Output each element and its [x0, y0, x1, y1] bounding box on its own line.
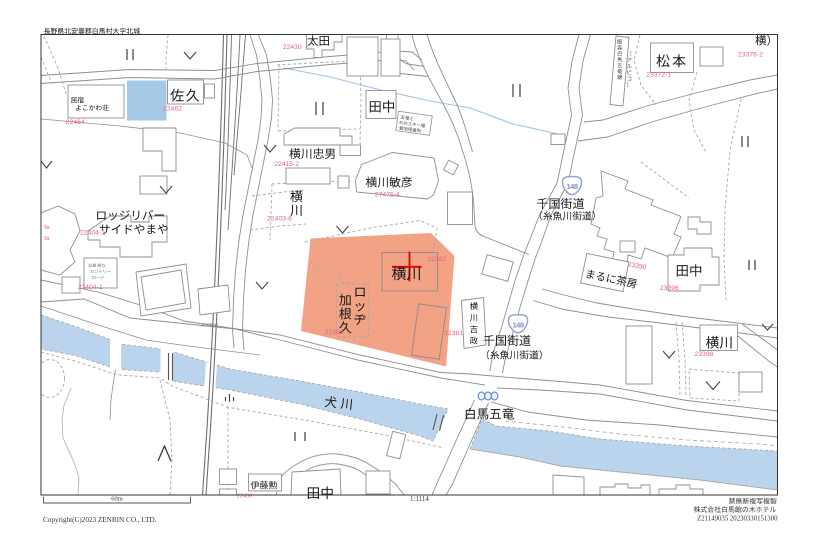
- svg-text:22462: 22462: [163, 106, 182, 113]
- svg-text:22464: 22464: [66, 119, 85, 126]
- svg-text:Copyright(C)2023 ZENRIN CO., L: Copyright(C)2023 ZENRIN CO., LTD.: [43, 516, 157, 524]
- svg-text:23372-1: 23372-1: [646, 72, 671, 79]
- svg-text:23398: 23398: [695, 351, 714, 358]
- svg-text:22382: 22382: [428, 256, 447, 263]
- svg-text:23376-2: 23376-2: [738, 52, 763, 59]
- svg-text:22381: 22381: [444, 330, 463, 337]
- svg-text:23396: 23396: [660, 285, 679, 292]
- svg-text:22415-2: 22415-2: [274, 161, 299, 168]
- svg-text:22430: 22430: [237, 493, 252, 499]
- svg-text:22403-6: 22403-6: [267, 215, 292, 222]
- svg-text:148: 148: [566, 182, 577, 191]
- svg-text:60m: 60m: [111, 496, 123, 503]
- svg-text:1:1114: 1:1114: [410, 495, 429, 503]
- svg-text:Z21149035 20230330151300: Z21149035 20230330151300: [697, 516, 778, 523]
- svg-text:22382: 22382: [325, 329, 344, 336]
- svg-text:22404-1: 22404-1: [78, 284, 103, 291]
- svg-text:148: 148: [512, 320, 523, 329]
- svg-text:9a: 9a: [44, 236, 50, 242]
- svg-text:9a: 9a: [44, 225, 50, 231]
- svg-text:22404-1: 22404-1: [80, 230, 105, 237]
- svg-text:22430: 22430: [283, 44, 302, 51]
- svg-text:27476-4: 27476-4: [375, 191, 400, 198]
